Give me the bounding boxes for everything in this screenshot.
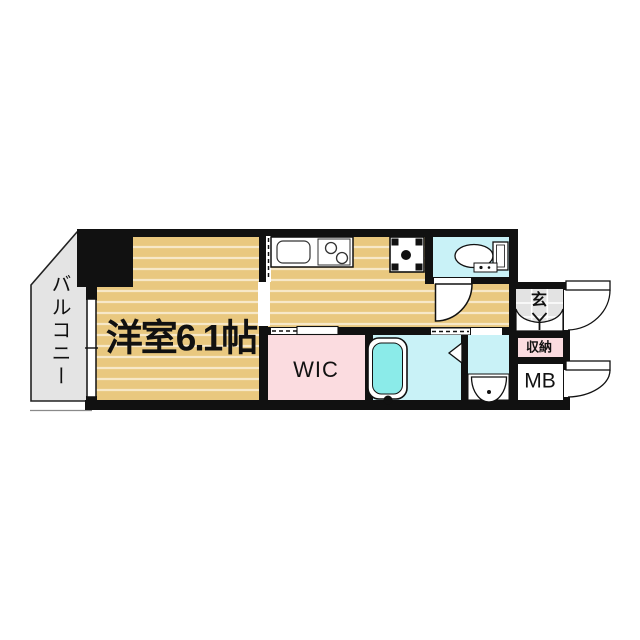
storage-label: 収納: [526, 341, 552, 354]
wall-pillar: [77, 229, 133, 287]
mb-door-swing-arc: [568, 370, 610, 397]
bath-area-opening: [431, 329, 470, 335]
toilet-doorway: [434, 278, 471, 284]
kitchen: [271, 237, 353, 267]
wic-sliding-door: [297, 327, 338, 335]
mb-doorway: [564, 370, 570, 397]
wall-entrance-bottom: [509, 331, 568, 338]
wall-toilet-west: [425, 236, 433, 284]
bath-faucet: [384, 396, 393, 405]
front-door-leaf: [566, 281, 610, 290]
mb-door-leaf: [566, 361, 610, 370]
floor-plan-drawing: [0, 0, 640, 640]
wall-left-upper: [86, 287, 97, 300]
stove-burner-1: [326, 243, 337, 254]
stove-burner-2: [337, 253, 348, 264]
bathtub-water: [373, 343, 403, 394]
wall-storage-bottom: [509, 357, 568, 364]
wash-basin: [468, 374, 509, 402]
toilet-base: [474, 263, 497, 272]
wall-partition-lower: [259, 326, 268, 402]
mb-door: [566, 361, 610, 397]
main-room-label: 洋室6.1帖: [106, 320, 256, 357]
wall-partition-upper: [259, 236, 266, 282]
front-door-swing-arc: [568, 290, 610, 330]
drain-outlet: [401, 250, 411, 260]
front-door: [566, 281, 610, 330]
wall-bottom: [85, 400, 570, 410]
main-room-doorway: [258, 282, 270, 326]
wall-entrance-top: [509, 282, 568, 289]
front-doorway: [564, 290, 570, 330]
wall-top: [77, 229, 518, 237]
sliding-window: [85, 299, 98, 397]
bathtub: [368, 338, 407, 405]
entrance-label: 玄: [531, 293, 547, 309]
floor-plan: 洋室6.1帖 バルコニー WIC 玄 収納 MB: [0, 0, 640, 640]
washroom-doorway: [471, 328, 502, 335]
wic-label: WIC: [293, 359, 339, 381]
meter-box-label: MB: [524, 371, 556, 392]
basin-drain: [487, 390, 491, 394]
kitchen-sink: [277, 241, 310, 263]
washing-machine-pan: [390, 237, 424, 272]
balcony-label: バルコニー: [49, 274, 69, 389]
